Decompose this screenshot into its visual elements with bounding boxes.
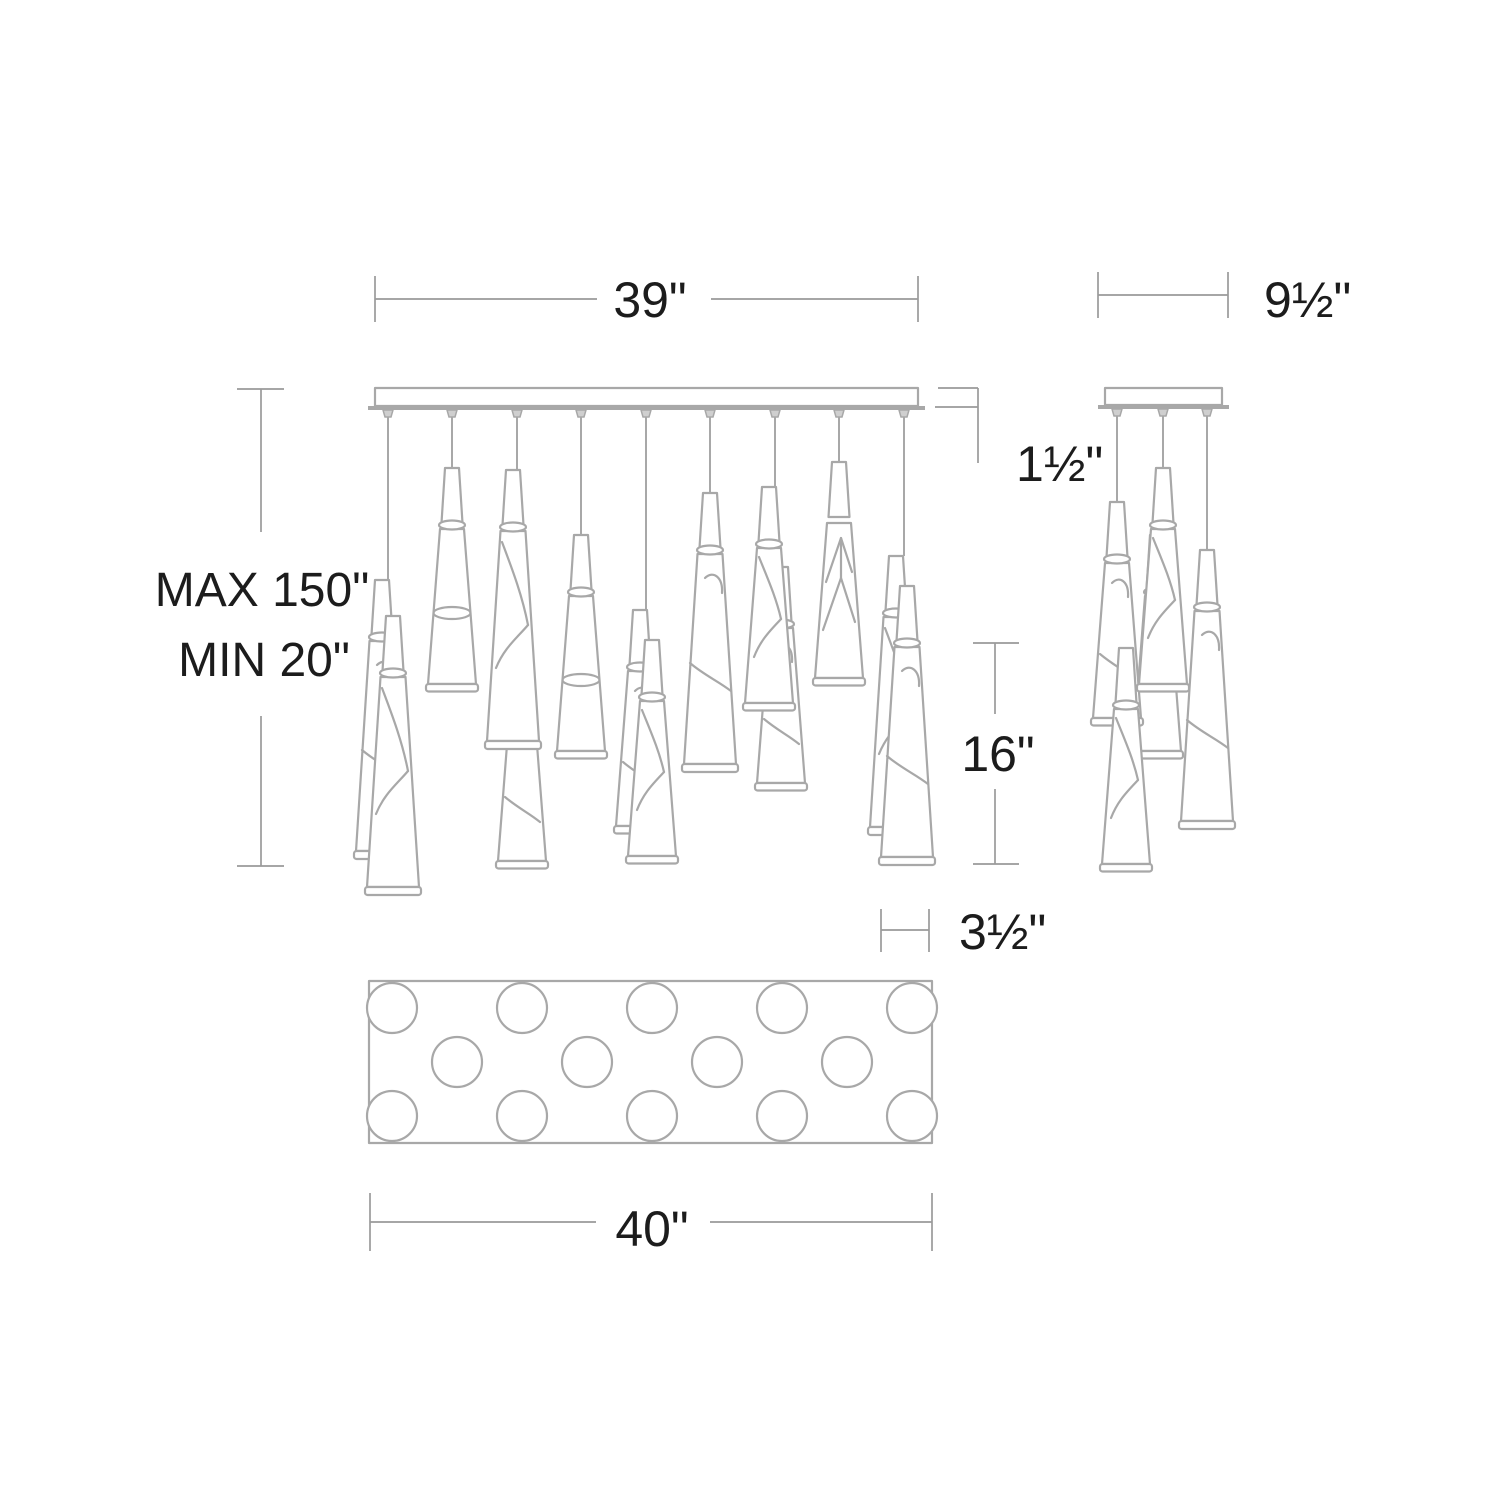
shade-diameter-label: 3½": [959, 904, 1046, 960]
dimension-overall-length: 40": [370, 1193, 932, 1257]
front-canopy: [368, 388, 925, 417]
suspension-min-label: MIN 20": [178, 634, 350, 687]
side-view: [1091, 388, 1235, 872]
shade-height-label: 16": [961, 726, 1034, 782]
side-canopy: [1098, 388, 1229, 416]
bottom-view: [367, 981, 937, 1143]
dimension-side-canopy-width: 9½": [1098, 272, 1351, 328]
dimension-shade-height: 16": [961, 643, 1034, 864]
suspension-max-label: MAX 150": [155, 564, 369, 617]
dimension-canopy-length: 39": [375, 272, 918, 328]
front-cord-fittings: [383, 410, 909, 417]
front-pendants: [354, 462, 935, 895]
overall-length-label: 40": [615, 1201, 688, 1257]
pendant-fixture-spec-diagram: 39" 9½" 1½" MAX 150" MIN 20" 16" 3½": [0, 0, 1500, 1500]
side-pendants: [1091, 468, 1235, 872]
dimension-canopy-thickness: 1½": [935, 388, 1103, 492]
side-canopy-width-label: 9½": [1264, 272, 1351, 328]
canopy-thickness-label: 1½": [1016, 436, 1103, 492]
canopy-length-label: 39": [613, 272, 686, 328]
diagram-svg: 39" 9½" 1½" MAX 150" MIN 20" 16" 3½": [0, 0, 1500, 1500]
front-view: [354, 388, 935, 895]
side-cord-fittings: [1112, 409, 1212, 416]
dimension-suspension-length: MAX 150" MIN 20": [155, 389, 369, 866]
dimension-shade-diameter: 3½": [881, 904, 1046, 960]
